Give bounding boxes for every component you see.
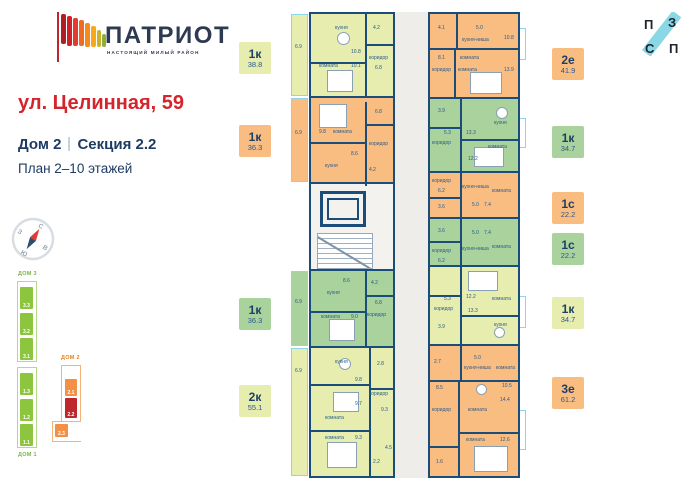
room-label: 9.7 bbox=[355, 402, 362, 407]
badge-apartment-2e-41-9[interactable]: 2е 41.9 bbox=[552, 48, 584, 80]
room-label: кухня-ниша bbox=[462, 247, 489, 252]
room-label: кухня bbox=[325, 164, 338, 169]
badge-apartment-1k-38-8[interactable]: 1к 38.8 bbox=[239, 42, 271, 74]
badge-type: 1к bbox=[249, 304, 262, 316]
badge-apartment-1k-36-3-top[interactable]: 1к 36.3 bbox=[239, 125, 271, 157]
room-label: 9.3 bbox=[381, 408, 388, 413]
apartment-b6[interactable]: 2.7 кухня-ниша 5.0 комната 10.5 8.5 14.4… bbox=[428, 344, 520, 478]
room-label: 8.6 bbox=[343, 279, 350, 284]
badge-apartment-1k-34-7-top[interactable]: 1к 34.7 bbox=[552, 126, 584, 158]
room-label: 10.8 bbox=[504, 36, 514, 41]
room-label: 6.9 bbox=[295, 300, 302, 305]
wall bbox=[365, 102, 367, 186]
room-label: кухня-ниша bbox=[462, 38, 489, 43]
badge-type: 1с bbox=[561, 239, 574, 251]
badge-area: 38.8 bbox=[248, 61, 263, 69]
badge-area: 22.2 bbox=[561, 252, 576, 260]
room-label: комната bbox=[468, 408, 487, 413]
room-label: 4.2 bbox=[369, 168, 376, 173]
badge-type: 1к bbox=[562, 303, 575, 315]
wall bbox=[454, 48, 456, 97]
furniture-table bbox=[337, 32, 350, 45]
room-label: 8.6 bbox=[351, 152, 358, 157]
furniture-bed bbox=[474, 147, 504, 167]
room-label: 3.9 bbox=[438, 109, 445, 114]
wall bbox=[430, 48, 518, 50]
room-label: кухня bbox=[494, 121, 507, 126]
badge-area: 34.7 bbox=[561, 316, 576, 324]
room-label: кухня bbox=[335, 26, 348, 31]
wall bbox=[430, 380, 518, 382]
balcony-a2: 6.9 bbox=[291, 98, 308, 182]
room-label: 6.9 bbox=[295, 131, 302, 136]
room-label: коридор bbox=[369, 142, 388, 147]
room-label: 2.8 bbox=[377, 362, 384, 367]
badge-type: 1к bbox=[249, 131, 262, 143]
badge-apartment-3e-61-2[interactable]: 3е 61.2 bbox=[552, 377, 584, 409]
apartment-b4[interactable]: коридор 6.2 3.6 кухня-ниша 5.0 7.4 комна… bbox=[428, 217, 520, 267]
room-label: 6.8 bbox=[375, 110, 382, 115]
badge-apartment-1s-22-2-bottom[interactable]: 1с 22.2 bbox=[552, 233, 584, 265]
badge-apartment-1s-22-2-top[interactable]: 1с 22.2 bbox=[552, 192, 584, 224]
room-label: коридор bbox=[434, 307, 453, 312]
apartment-a2[interactable]: 9.8 комната кухня 8.6 коридор 6.8 4.2 bbox=[309, 96, 395, 184]
wall bbox=[430, 127, 460, 129]
furniture-bed bbox=[468, 271, 498, 291]
wall bbox=[311, 311, 365, 313]
room-label: 3.6 bbox=[438, 205, 445, 210]
furniture-bed bbox=[327, 70, 353, 92]
room-label: 7.4 bbox=[484, 203, 491, 208]
room-label: 6.9 bbox=[295, 45, 302, 50]
room-label: 6.8 bbox=[375, 301, 382, 306]
furniture-bed bbox=[470, 72, 502, 94]
floor-plan: 6.9 6.9 6.9 6.9 кухня 10.8 4.2 комната 1… bbox=[0, 0, 700, 490]
room-label: комната bbox=[496, 366, 515, 371]
room-label: коридор bbox=[369, 56, 388, 61]
room-label: коридор bbox=[432, 68, 451, 73]
wall bbox=[456, 14, 458, 48]
stair-elevator-zone bbox=[309, 182, 395, 271]
room-label: 6.2 bbox=[438, 259, 445, 264]
room-label: комната bbox=[488, 145, 507, 150]
badge-area: 22.2 bbox=[561, 211, 576, 219]
apartment-a4[interactable]: кухня 2.8 9.8 коридор 9.7 комната 9.3 ко… bbox=[309, 346, 395, 478]
wall bbox=[430, 241, 460, 243]
room-label: 6.8 bbox=[375, 66, 382, 71]
room-label: 9.3 bbox=[355, 436, 362, 441]
badge-area: 36.3 bbox=[248, 317, 263, 325]
apartment-b1[interactable]: 4.1 кухня-ниша 5.0 10.8 коридор 8.1 комн… bbox=[428, 12, 520, 99]
room-label: кухня-ниша bbox=[462, 185, 489, 190]
room-label: коридор bbox=[432, 141, 451, 146]
room-label: 4.1 bbox=[438, 26, 445, 31]
badge-type: 1к bbox=[249, 48, 262, 60]
balcony-a3: 6.9 bbox=[291, 271, 308, 346]
apartment-a1[interactable]: кухня 10.8 4.2 комната 10.1 коридор 6.8 bbox=[309, 12, 395, 98]
room-label: 14.4 bbox=[500, 398, 510, 403]
apartment-b3[interactable]: коридор 6.2 3.6 кухня-ниша 5.0 7.4 комна… bbox=[428, 171, 520, 219]
room-label: 3.6 bbox=[438, 229, 445, 234]
furniture-bed bbox=[319, 104, 347, 128]
room-label: 9.8 bbox=[319, 130, 326, 135]
furniture-bed bbox=[474, 446, 508, 472]
wall bbox=[430, 197, 460, 199]
badge-type: 2к bbox=[249, 391, 262, 403]
room-label: 12.2 bbox=[468, 157, 478, 162]
badge-area: 55.1 bbox=[248, 404, 263, 412]
badge-type: 2е bbox=[561, 54, 574, 66]
room-label: 5.0 bbox=[472, 231, 479, 236]
room-label: комната bbox=[325, 416, 344, 421]
wall bbox=[460, 219, 462, 265]
wall bbox=[365, 44, 393, 46]
wall bbox=[460, 346, 462, 380]
badge-area: 36.3 bbox=[248, 144, 263, 152]
room-label: 13.3 bbox=[468, 309, 478, 314]
wall bbox=[311, 384, 369, 386]
balcony-a4: 6.9 bbox=[291, 348, 308, 476]
room-label: коридор bbox=[432, 408, 451, 413]
badge-type: 3е bbox=[561, 383, 574, 395]
room-label: 6.2 bbox=[438, 189, 445, 194]
badge-type: 1с bbox=[561, 198, 574, 210]
room-label: 10.5 bbox=[502, 384, 512, 389]
room-label: комната bbox=[333, 130, 352, 135]
stairs-diagonal bbox=[317, 236, 373, 269]
room-label: коридор bbox=[432, 179, 451, 184]
furniture-table bbox=[476, 384, 487, 395]
room-label: комната bbox=[458, 68, 477, 73]
room-label: 13.3 bbox=[466, 131, 476, 136]
elevator bbox=[320, 191, 366, 227]
elevator-cab bbox=[327, 198, 359, 220]
badge-apartment-2k-55-1[interactable]: 2к 55.1 bbox=[239, 385, 271, 417]
stairs bbox=[317, 233, 373, 269]
room-label: 5.0 bbox=[474, 356, 481, 361]
room-label: 4.2 bbox=[373, 26, 380, 31]
room-label: комната bbox=[492, 245, 511, 250]
room-label: 9.8 bbox=[355, 378, 362, 383]
room-label: коридор bbox=[369, 392, 388, 397]
room-label: кухня bbox=[335, 360, 348, 365]
furniture-table bbox=[496, 107, 508, 119]
wall bbox=[365, 271, 367, 346]
wall bbox=[365, 124, 393, 126]
room-label: 12.6 bbox=[500, 438, 510, 443]
room-label: 2.7 bbox=[434, 360, 441, 365]
wall bbox=[460, 267, 462, 344]
room-label: 5.3 bbox=[444, 131, 451, 136]
furniture-table bbox=[494, 327, 505, 338]
room-label: 12.2 bbox=[466, 295, 476, 300]
wall bbox=[369, 348, 371, 476]
wall bbox=[460, 315, 518, 317]
room-label: коридор bbox=[432, 249, 451, 254]
wall bbox=[460, 99, 462, 171]
wall bbox=[460, 139, 518, 141]
room-label: 9.0 bbox=[351, 315, 358, 320]
badge-area: 34.7 bbox=[561, 145, 576, 153]
common-corridor bbox=[391, 12, 430, 478]
apartment-b5[interactable]: коридор 5.3 12.2 13.3 комната кухня 3.9 bbox=[428, 265, 520, 346]
apartment-a3[interactable]: кухня 8.6 комната 9.0 коридор 6.8 4.2 bbox=[309, 269, 395, 348]
wall bbox=[460, 173, 462, 217]
wall bbox=[365, 14, 367, 96]
apartment-b2[interactable]: 3.9 коридор 5.3 кухня 13.3 комната 12.2 bbox=[428, 97, 520, 173]
room-label: комната bbox=[321, 315, 340, 320]
room-label: кухня-ниша bbox=[464, 366, 491, 371]
room-label: комната bbox=[319, 64, 338, 69]
room-label: 13.9 bbox=[504, 68, 514, 73]
room-label: комната bbox=[466, 438, 485, 443]
room-label: 5.0 bbox=[476, 26, 483, 31]
furniture-bed bbox=[329, 319, 355, 341]
wall bbox=[369, 388, 393, 390]
wall bbox=[458, 380, 460, 476]
room-label: комната bbox=[460, 56, 479, 61]
room-label: комната bbox=[325, 436, 344, 441]
room-label: 7.4 bbox=[484, 231, 491, 236]
room-label: комната bbox=[492, 297, 511, 302]
room-label: 5.0 bbox=[472, 203, 479, 208]
badge-apartment-1k-34-7-bottom[interactable]: 1к 34.7 bbox=[552, 297, 584, 329]
room-label: 4.2 bbox=[371, 281, 378, 286]
wall bbox=[311, 430, 369, 432]
room-label: комната bbox=[492, 189, 511, 194]
wall bbox=[430, 446, 458, 448]
room-label: кухня bbox=[327, 291, 340, 296]
room-label: 10.8 bbox=[351, 50, 361, 55]
room-label: 8.5 bbox=[436, 386, 443, 391]
balcony-a1: 6.9 bbox=[291, 14, 308, 96]
room-label: 6.9 bbox=[295, 369, 302, 374]
badge-area: 61.2 bbox=[561, 396, 576, 404]
wall bbox=[365, 295, 393, 297]
room-label: 3.9 bbox=[438, 325, 445, 330]
badge-type: 1к bbox=[562, 132, 575, 144]
room-label: 2.2 bbox=[373, 460, 380, 465]
room-label: 4.5 bbox=[385, 446, 392, 451]
wall bbox=[458, 432, 518, 434]
room-label: коридор bbox=[367, 313, 386, 318]
badge-apartment-1k-36-3-bottom[interactable]: 1к 36.3 bbox=[239, 298, 271, 330]
wall bbox=[311, 142, 365, 144]
room-label: 8.1 bbox=[438, 56, 445, 61]
room-label: 1.6 bbox=[436, 460, 443, 465]
room-label: 10.1 bbox=[351, 64, 361, 69]
furniture-bed bbox=[327, 442, 357, 468]
room-label: 5.3 bbox=[444, 297, 451, 302]
room-label: кухня bbox=[494, 323, 507, 328]
badge-area: 41.9 bbox=[561, 67, 576, 75]
